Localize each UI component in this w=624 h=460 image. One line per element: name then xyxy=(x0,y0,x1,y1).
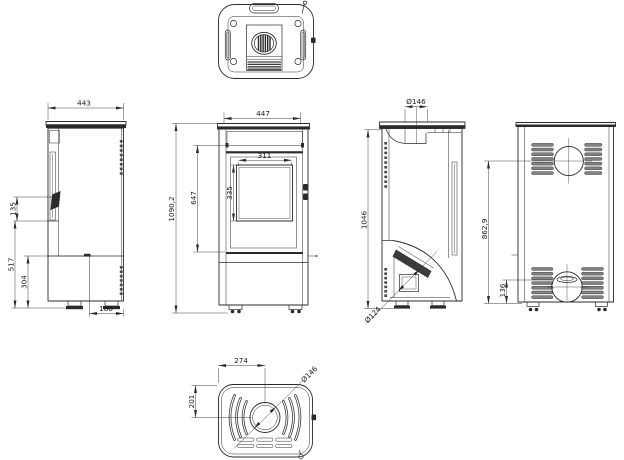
dim-total-height: 1090,2 xyxy=(167,196,176,221)
dim-depth-186: 186 xyxy=(99,304,113,313)
dim-glass-width: 311 xyxy=(258,151,272,160)
dim-flue-offset-depth: 274 xyxy=(234,356,248,365)
dim-height-517: 517 xyxy=(7,258,16,272)
dim-flue-center-height: 862,9 xyxy=(480,218,489,239)
dim-door-height: 647 xyxy=(189,191,198,205)
side-knob xyxy=(312,415,317,421)
dim-height-1046: 1046 xyxy=(360,210,369,229)
door-handle xyxy=(303,184,308,191)
side-knob xyxy=(311,38,316,44)
dim-flue-diameter: Ø146 xyxy=(406,97,426,106)
dim-front-width: 447 xyxy=(256,109,270,118)
technical-drawing: 443 135 517 304 186 xyxy=(0,0,624,460)
dim-left-depth: 443 xyxy=(77,99,91,108)
dim-flue-offset-side: 201 xyxy=(187,395,196,409)
dim-intake-center-height: 136 xyxy=(498,283,507,297)
dim-height-304: 304 xyxy=(20,275,29,289)
dim-glass-height: 335 xyxy=(225,186,234,200)
drawing-canvas: 443 135 517 304 186 xyxy=(0,0,624,460)
dim-handle-height: 135 xyxy=(9,202,18,216)
